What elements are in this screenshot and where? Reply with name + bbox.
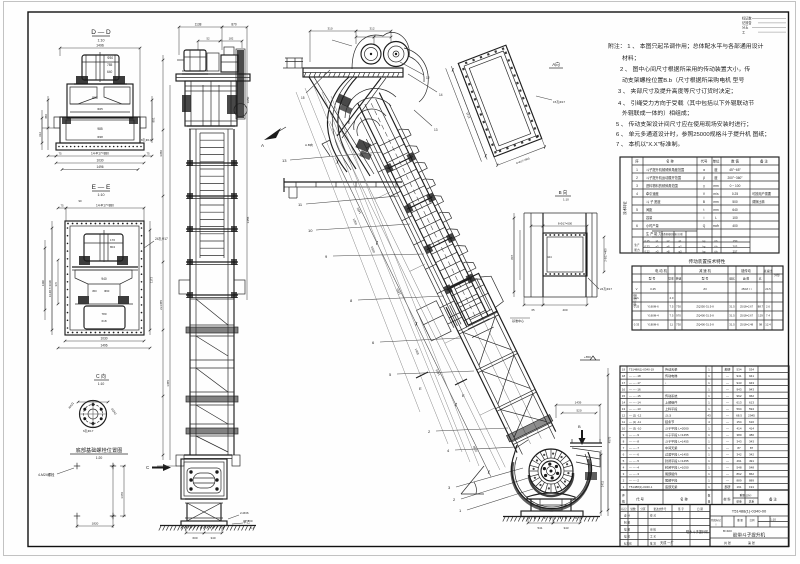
svg-text:斗子平段 L=2000: 斗子平段 L=2000 [665, 425, 689, 430]
svg-text:记效告: 记效告 [742, 20, 752, 25]
svg-text:1030: 1030 [96, 159, 103, 163]
svg-text:640: 640 [732, 208, 738, 212]
svg-text:B=400: B=400 [723, 529, 732, 533]
svg-text:257: 257 [733, 250, 738, 254]
svg-text:传动系统: 传动系统 [665, 393, 677, 398]
svg-text:1470: 1470 [120, 492, 124, 499]
svg-text:16: 16 [622, 387, 626, 391]
svg-text:4 、 引绳受力方向于受载（其中包括以下外辊联动节: 4 、 引绳受力方向于受载（其中包括以下外辊联动节 [618, 99, 754, 107]
svg-text:943: 943 [736, 381, 741, 385]
svg-text:减 速 机: 减 速 机 [699, 268, 712, 273]
svg-text:11: 11 [622, 420, 625, 424]
svg-text:—: — [726, 433, 729, 437]
svg-text:标准化: 标准化 [624, 542, 632, 546]
svg-text:T51488(1)-0340-19: T51488(1)-0340-19 [629, 368, 654, 372]
svg-text:1496: 1496 [96, 44, 104, 48]
svg-text:Φ60: Φ60 [104, 289, 110, 293]
svg-text:B: B [703, 200, 705, 204]
svg-text:底部天梁: 底部天梁 [665, 484, 677, 489]
svg-text:描 图: 描 图 [624, 528, 630, 532]
svg-text:0.33: 0.33 [644, 244, 650, 248]
svg-text:14-Φ17=1030: 14-Φ17=1030 [48, 280, 52, 298]
svg-text:941: 941 [736, 374, 741, 378]
svg-text:3350: 3350 [159, 150, 163, 157]
svg-text:α: α [703, 168, 705, 172]
svg-text:外辊联成一体的）相组成；: 外辊联成一体的）相组成； [622, 109, 693, 117]
svg-text:t: t [704, 208, 705, 212]
svg-text:标记: 标记 [621, 507, 627, 511]
svg-text:—: — [726, 466, 729, 470]
svg-text:m³/h: m³/h [713, 224, 720, 228]
svg-text:12: 12 [622, 413, 626, 417]
svg-text:640: 640 [107, 70, 113, 74]
svg-text:10: 10 [622, 426, 626, 430]
svg-text:12: 12 [426, 76, 430, 80]
svg-text:1820: 1820 [92, 522, 99, 526]
svg-text:Y160M-4: Y160M-4 [647, 314, 659, 318]
svg-text:齿 数: 齿 数 [743, 277, 750, 281]
svg-text:943: 943 [749, 381, 754, 385]
svg-text:描 校: 描 校 [624, 535, 630, 539]
svg-text:技术特征: 技术特征 [622, 201, 627, 215]
svg-text:生产: 生产 [634, 243, 640, 247]
svg-text:总重: 总重 [749, 499, 755, 503]
svg-text:13: 13 [622, 407, 626, 411]
svg-text:12.4: 12.4 [765, 323, 771, 327]
svg-text:中间天梁: 中间天梁 [665, 445, 677, 450]
svg-text:500: 500 [732, 200, 738, 204]
svg-text:能力: 能力 [634, 248, 640, 252]
svg-text:斗 子 宽度: 斗 子 宽度 [646, 199, 661, 204]
svg-text:15: 15 [622, 394, 626, 398]
svg-text:8-Φ17=500: 8-Φ17=500 [558, 222, 573, 226]
svg-text:外形: 外形 [774, 273, 780, 277]
svg-text:型 号: 型 号 [702, 276, 709, 281]
svg-text:43: 43 [707, 413, 711, 417]
svg-text:尾部平段: 尾部平段 [665, 478, 677, 483]
svg-text:594: 594 [749, 407, 754, 411]
svg-text:备 注: 备 注 [760, 159, 768, 164]
svg-text:总速比: 总速比 [763, 268, 772, 273]
svg-text:签 字: 签 字 [678, 507, 684, 511]
svg-text:541: 541 [537, 526, 542, 530]
svg-text:129: 129 [758, 314, 763, 318]
svg-text:—: — [726, 374, 729, 378]
svg-text:785: 785 [107, 63, 113, 67]
svg-text:V: V [636, 287, 638, 291]
svg-text:15: 15 [301, 96, 305, 100]
svg-text:3: 3 [636, 184, 638, 188]
svg-text:— — -4: — — -4 [629, 466, 639, 470]
svg-text:— — -2: — — -2 [629, 479, 639, 483]
svg-text:斗子提升机械倾斜角度范围: 斗子提升机械倾斜角度范围 [646, 167, 684, 172]
svg-text:1138: 1138 [195, 23, 202, 27]
svg-text:设 计: 设 计 [624, 514, 630, 518]
svg-text:Φ38: Φ38 [97, 135, 103, 139]
svg-text:代号: 代号 [701, 159, 708, 164]
svg-text:342: 342 [736, 453, 741, 457]
svg-text:7.5: 7.5 [670, 305, 674, 309]
svg-text:6 、 单元多通道设计时，参照25000规格斗子提升机 图纸: 6 、 单元多通道设计时，参照25000规格斗子提升机 图纸； [616, 130, 770, 138]
svg-text:87: 87 [750, 446, 754, 450]
svg-text:25/18=2.67: 25/18=2.67 [740, 305, 754, 309]
svg-text:电 动 机: 电 动 机 [655, 268, 668, 273]
svg-text:24.5: 24.5 [765, 287, 771, 291]
svg-text:—: — [726, 394, 729, 398]
svg-text:450: 450 [92, 289, 97, 293]
svg-text:分五: 分五 [742, 25, 749, 30]
svg-text:尾部组件: 尾部组件 [665, 471, 677, 476]
svg-text:943: 943 [736, 387, 741, 391]
svg-text:日 期: 日 期 [697, 507, 703, 511]
svg-text:共 张: 共 张 [724, 540, 731, 545]
svg-text:工 艺: 工 艺 [650, 535, 656, 539]
svg-text:— — -7: — — -7 [629, 446, 639, 450]
svg-text:mm: mm [713, 208, 719, 212]
svg-text:1439: 1439 [575, 401, 582, 405]
svg-text:+650: +650 [584, 355, 591, 359]
svg-text:618: 618 [101, 319, 106, 323]
svg-text:730: 730 [676, 323, 681, 327]
svg-text:数 值: 数 值 [731, 159, 739, 164]
svg-text:13: 13 [282, 158, 287, 163]
svg-text:17: 17 [622, 381, 626, 385]
svg-text:962: 962 [749, 394, 754, 398]
svg-text:400: 400 [562, 308, 567, 312]
svg-text:25/18 = i: 25/18 = i [741, 287, 751, 291]
svg-text:170: 170 [110, 238, 115, 242]
svg-text:45°~65°: 45°~65° [729, 168, 741, 172]
svg-text:容量: 容量 [646, 215, 653, 220]
svg-text:862: 862 [736, 472, 741, 476]
svg-text:594: 594 [736, 407, 741, 411]
svg-text:小时产量: 小时产量 [646, 223, 660, 228]
svg-text:ZQ350-31.5-Ⅱ: ZQ350-31.5-Ⅱ [696, 305, 714, 309]
svg-text:— — -13: — — -13 [629, 407, 641, 411]
svg-text:胶带斗子提升机: 胶带斗子提升机 [733, 532, 766, 539]
svg-text:链条节: 链条节 [665, 419, 674, 424]
svg-text:5: 5 [636, 208, 638, 212]
svg-text:1:10: 1:10 [563, 198, 569, 202]
svg-text:600: 600 [192, 536, 197, 540]
svg-text:6: 6 [636, 224, 638, 228]
svg-text:98: 98 [759, 323, 763, 327]
svg-text:m/s: m/s [634, 296, 639, 300]
svg-text:182: 182 [229, 37, 234, 41]
svg-text:B: B [578, 424, 581, 429]
svg-text:—: — [726, 472, 729, 476]
svg-text:— — -8: — — -8 [629, 440, 639, 444]
svg-text:941: 941 [749, 374, 754, 378]
svg-text:—: — [726, 381, 729, 385]
svg-text:2 、 图中心间尺寸根据所采用的传动装置大小，传: 2 、 图中心间尺寸根据所采用的传动装置大小，传 [620, 65, 750, 73]
svg-text:—: — [726, 459, 729, 463]
svg-text:150: 150 [733, 239, 738, 243]
svg-text:24孔Φ17: 24孔Φ17 [155, 236, 168, 241]
svg-text:2945: 2945 [748, 413, 755, 417]
svg-text:613: 613 [736, 400, 741, 404]
svg-text:Y180M-6: Y180M-6 [647, 323, 659, 327]
svg-text:代 号: 代 号 [636, 496, 644, 501]
svg-text:—: — [726, 400, 729, 404]
svg-text:4.0: 4.0 [670, 296, 674, 300]
svg-text:889: 889 [749, 479, 754, 483]
svg-text:斗子平段 L=1455: 斗子平段 L=1455 [665, 432, 689, 437]
svg-text:E — E: E — E [92, 184, 111, 191]
svg-text:上部组件: 上部组件 [665, 399, 677, 404]
svg-text:附注： 1 、 本图只起吊调作用；总体配水平与各部通用设计: 附注： 1 、 本图只起吊调作用；总体配水平与各部通用设计 [608, 42, 764, 50]
svg-text:15孔Φ17: 15孔Φ17 [553, 99, 565, 104]
svg-text:1173: 1173 [150, 277, 154, 283]
svg-text:1:10: 1:10 [98, 382, 105, 386]
svg-text:比: 比 [759, 277, 762, 281]
svg-text:414: 414 [749, 426, 754, 430]
svg-text:87: 87 [737, 446, 741, 450]
svg-text:天成 一厂: 天成 一厂 [660, 540, 674, 545]
svg-text:6孔Φ17: 6孔Φ17 [83, 428, 94, 433]
svg-text:0.25: 0.25 [732, 192, 738, 196]
svg-text:10: 10 [308, 228, 313, 233]
svg-text:链传动: 链传动 [741, 268, 751, 273]
svg-text:154: 154 [736, 420, 741, 424]
svg-text:mm: mm [713, 184, 719, 188]
svg-text:534: 534 [736, 368, 741, 372]
svg-text:7.5: 7.5 [670, 314, 674, 318]
svg-text:名 称: 名 称 [666, 159, 674, 164]
svg-text:功率: 功率 [668, 277, 674, 281]
svg-text:2x1455: 2x1455 [159, 300, 163, 310]
svg-text:343: 343 [736, 440, 741, 444]
svg-text:730: 730 [676, 305, 681, 309]
svg-text:68.5: 68.5 [736, 413, 742, 417]
svg-text:0.22: 0.22 [644, 250, 650, 254]
svg-text:单位: 单位 [713, 159, 720, 164]
svg-text:1:10: 1:10 [98, 193, 105, 197]
svg-text:更改文件号: 更改文件号 [654, 507, 667, 511]
svg-text:312: 312 [38, 132, 42, 137]
svg-text:— — -6: — — -6 [629, 453, 639, 457]
svg-text:基准中心: 基准中心 [512, 318, 524, 323]
svg-text:动支架螺栓位置B.b（尺寸根据所采购电机 型号: 动支架螺栓位置B.b（尺寸根据所采购电机 型号 [622, 76, 745, 84]
svg-text:—: — [726, 420, 729, 424]
svg-text:400: 400 [732, 224, 738, 228]
svg-text:450: 450 [44, 114, 48, 119]
svg-text:1455: 1455 [246, 216, 250, 223]
svg-text:β: β [703, 176, 705, 180]
svg-text:间距: 间距 [646, 207, 653, 212]
svg-text:D — D: D — D [91, 29, 111, 36]
svg-text:— (1) -11: — (1) -11 [629, 420, 641, 424]
svg-text:ZQ400-31.5-Ⅱ: ZQ400-31.5-Ⅱ [696, 323, 714, 327]
svg-text:616: 616 [749, 420, 754, 424]
svg-text:— — -14: — — -14 [629, 400, 641, 404]
svg-text:548: 548 [749, 466, 754, 470]
svg-text:312: 312 [369, 27, 374, 31]
svg-text:14: 14 [439, 93, 443, 97]
svg-text:第 张: 第 张 [748, 540, 755, 545]
svg-text:—: — [726, 407, 729, 411]
svg-text:800: 800 [92, 96, 98, 100]
svg-text:Φ30: Φ30 [107, 56, 113, 60]
svg-text:1496: 1496 [96, 165, 103, 169]
svg-text:件: 件 [622, 493, 625, 497]
svg-text:4575: 4575 [608, 436, 612, 443]
svg-text:25/18=2.67: 25/18=2.67 [740, 314, 754, 318]
svg-text:343: 343 [563, 526, 568, 530]
svg-text:491: 491 [749, 459, 754, 463]
svg-text:19: 19 [622, 368, 626, 372]
svg-text:1030: 1030 [100, 337, 107, 341]
svg-text:8孔Φ17: 8孔Φ17 [141, 137, 152, 142]
svg-text:ZQ400-31.5-Ⅱ: ZQ400-31.5-Ⅱ [696, 314, 714, 318]
svg-text:单重: 单重 [736, 499, 742, 503]
svg-text:943: 943 [749, 387, 754, 391]
svg-text:C 向: C 向 [96, 373, 106, 380]
svg-text:—: — [726, 479, 729, 483]
svg-text:548: 548 [736, 466, 741, 470]
svg-text:重量(公斤): 重量(公斤) [740, 493, 752, 497]
svg-text:75: 75 [58, 152, 62, 156]
svg-text:2.6: 2.6 [766, 305, 770, 309]
svg-text:940: 940 [101, 277, 107, 281]
svg-text:14-Φ17=880: 14-Φ17=880 [91, 152, 109, 156]
svg-text:491: 491 [736, 459, 741, 463]
svg-text:343: 343 [749, 440, 754, 444]
svg-text:13: 13 [434, 128, 438, 132]
svg-text:A向: A向 [552, 61, 560, 67]
svg-text:斗子提升机运动展开范围: 斗子提升机运动展开范围 [646, 175, 681, 180]
svg-text:m/s: m/s [713, 192, 719, 196]
svg-text:上料平段: 上料平段 [665, 406, 677, 411]
svg-text:1:10: 1:10 [770, 518, 776, 522]
svg-text:0.25: 0.25 [644, 239, 650, 243]
svg-text:—: — [726, 440, 729, 444]
svg-text:—: — [726, 426, 729, 430]
svg-text:量: 量 [708, 499, 711, 503]
svg-text:数: 数 [622, 499, 625, 503]
svg-text:— — -5: — — -5 [629, 459, 639, 463]
svg-text:速比: 速比 [729, 277, 735, 281]
svg-text:862: 862 [749, 472, 754, 476]
svg-text:52: 52 [206, 37, 210, 41]
svg-text:962: 962 [736, 394, 741, 398]
svg-text:调换比转: 调换比转 [752, 199, 766, 204]
svg-text:5 、 传动支架设计间尺寸应在使用现场安装时进行；: 5 、 传动支架设计间尺寸应在使用现场安装时进行； [616, 120, 752, 128]
svg-text:牵引速度: 牵引速度 [646, 191, 660, 196]
svg-text:0.25: 0.25 [650, 287, 656, 291]
svg-text:过渡平段 L=1455: 过渡平段 L=1455 [665, 452, 689, 457]
svg-text:14: 14 [622, 400, 626, 404]
svg-text:生 产 能 力: 生 产 能 力 [646, 231, 661, 236]
svg-text:31.5: 31.5 [729, 323, 735, 327]
svg-text:批 准: 批 准 [650, 542, 656, 546]
svg-text:342: 342 [749, 453, 754, 457]
svg-text:重 量: 重 量 [737, 518, 743, 522]
svg-text:200°~360°: 200°~360° [727, 176, 743, 180]
svg-text:E: E [462, 393, 465, 398]
svg-text:— — -16: — — -16 [629, 387, 641, 391]
svg-text:传动电梯: 传动电梯 [665, 373, 677, 378]
svg-text:2-Φ17=400: 2-Φ17=400 [604, 248, 608, 262]
svg-text:转速: 转速 [676, 277, 682, 281]
svg-text:780: 780 [101, 312, 106, 316]
svg-text:14-Φ17=880: 14-Φ17=880 [96, 204, 114, 208]
svg-text:75: 75 [146, 152, 150, 156]
svg-text:校 对: 校 对 [650, 514, 656, 518]
svg-text:可按用户需要: 可按用户需要 [752, 191, 772, 196]
svg-text:2: 2 [636, 176, 638, 180]
svg-text:613: 613 [749, 400, 754, 404]
svg-text:材料；: 材料； [622, 54, 640, 62]
svg-text:比例: 比例 [750, 518, 755, 522]
svg-text:— — -15: — — -15 [629, 394, 641, 398]
svg-text:底部基础螺栓位置图: 底部基础螺栓位置图 [76, 446, 123, 454]
svg-text:L: L [715, 216, 717, 220]
svg-text:1:10: 1:10 [98, 39, 105, 43]
svg-text:0.33: 0.33 [634, 323, 640, 327]
svg-text:Y160M-6: Y160M-6 [647, 305, 659, 309]
svg-text:—: — [726, 446, 729, 450]
svg-text:24孔Φ17: 24孔Φ17 [600, 286, 612, 291]
svg-text:型 号: 型 号 [649, 276, 656, 281]
svg-text:数: 数 [708, 493, 711, 497]
svg-text:Z3: Z3 [703, 287, 707, 291]
svg-text:—: — [726, 387, 729, 391]
svg-text:部研: 部研 [724, 367, 730, 372]
svg-text:804: 804 [110, 245, 115, 249]
svg-text:340: 340 [210, 536, 215, 540]
svg-text:名 称: 名 称 [680, 496, 688, 501]
svg-text:审 核: 审 核 [650, 528, 656, 532]
svg-text:材 料: 材 料 [723, 496, 731, 501]
svg-text:870: 870 [231, 23, 237, 27]
svg-text:封闭平段 L=1455: 封闭平段 L=1455 [665, 458, 689, 463]
svg-text:传动装置技术特性: 传动装置技术特性 [689, 258, 726, 265]
svg-text:甲乙: 甲乙 [243, 519, 250, 524]
svg-text:—: — [726, 413, 729, 417]
svg-text:310: 310 [327, 27, 332, 31]
svg-text:534: 534 [749, 368, 754, 372]
svg-text:进料物料的倾斜角范围: 进料物料的倾斜角范围 [646, 183, 678, 188]
svg-text:65: 65 [531, 308, 535, 312]
svg-text:B 向: B 向 [559, 189, 568, 195]
svg-text:E: E [419, 386, 422, 391]
svg-text:100: 100 [732, 216, 738, 220]
svg-text:970: 970 [676, 314, 681, 318]
svg-text:处数: 处数 [630, 507, 636, 511]
svg-text:414: 414 [736, 426, 741, 430]
svg-text:— — -9: — — -9 [629, 433, 639, 437]
svg-text:1:20: 1:20 [96, 456, 103, 460]
svg-text:1: 1 [636, 168, 638, 172]
svg-text:11: 11 [670, 323, 673, 327]
svg-text:— — -17: — — -17 [629, 381, 641, 385]
svg-text:— — -3: — — -3 [629, 472, 639, 476]
svg-text:T51488(1)-0340-00: T51488(1)-0340-00 [732, 509, 767, 514]
svg-text:—: — [726, 453, 729, 457]
svg-text:封闭平段 L=1050: 封闭平段 L=1050 [665, 465, 689, 470]
svg-text:203: 203 [733, 244, 738, 248]
svg-text:mm: mm [713, 200, 719, 204]
svg-text:制 图: 制 图 [624, 521, 630, 525]
svg-text:7.4: 7.4 [766, 314, 770, 318]
svg-text:75: 75 [60, 204, 64, 208]
svg-text:191: 191 [736, 485, 741, 489]
svg-text:3 、 夹部尺寸及提升高度等尺寸订货时决定；: 3 、 夹部尺寸及提升高度等尺寸订货时决定； [618, 87, 736, 95]
svg-text:阶段标记: 阶段标记 [711, 518, 721, 522]
svg-text:7 、 本机以"X.X"标准制。: 7 、 本机以"X.X"标准制。 [616, 140, 683, 148]
svg-text:18: 18 [622, 374, 626, 378]
